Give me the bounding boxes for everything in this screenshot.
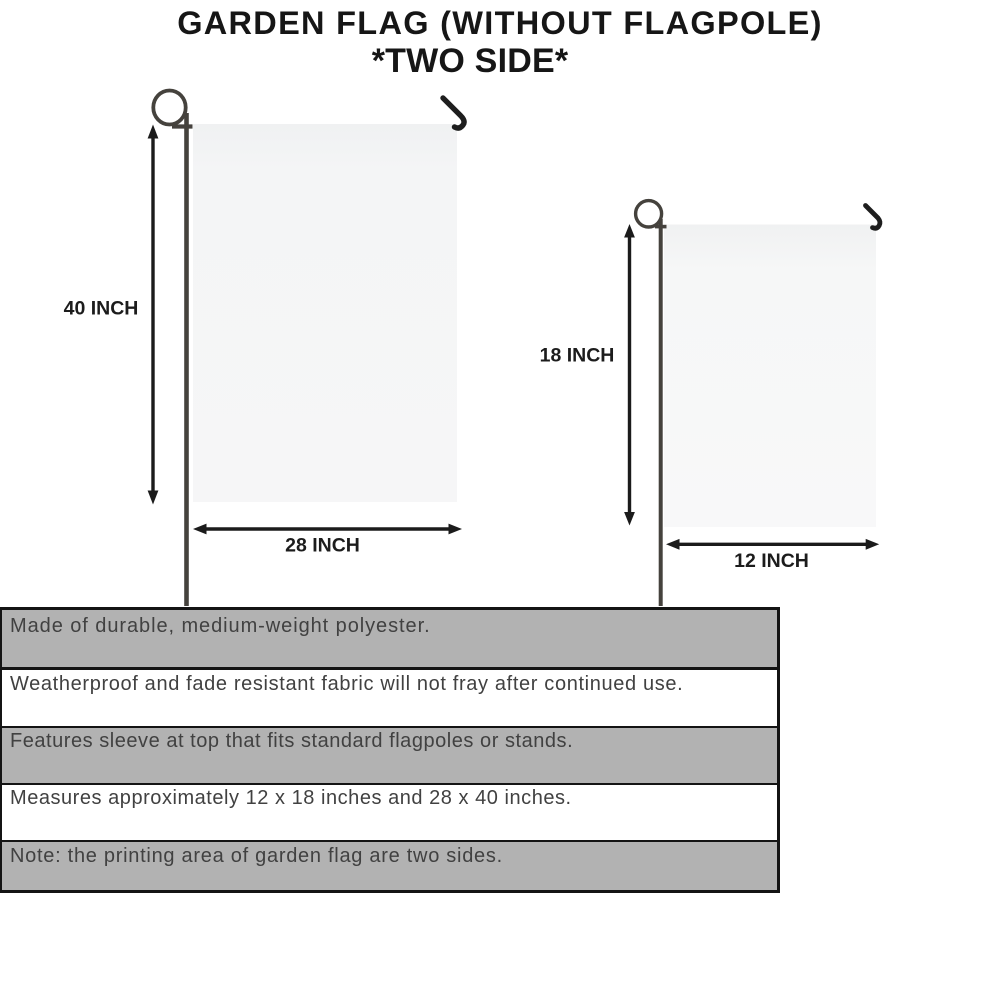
svg-text:18 INCH: 18 INCH — [540, 345, 615, 367]
svg-text:28 INCH: 28 INCH — [285, 535, 360, 557]
svg-text:12 INCH: 12 INCH — [734, 550, 809, 572]
svg-text:40 INCH: 40 INCH — [64, 298, 139, 320]
